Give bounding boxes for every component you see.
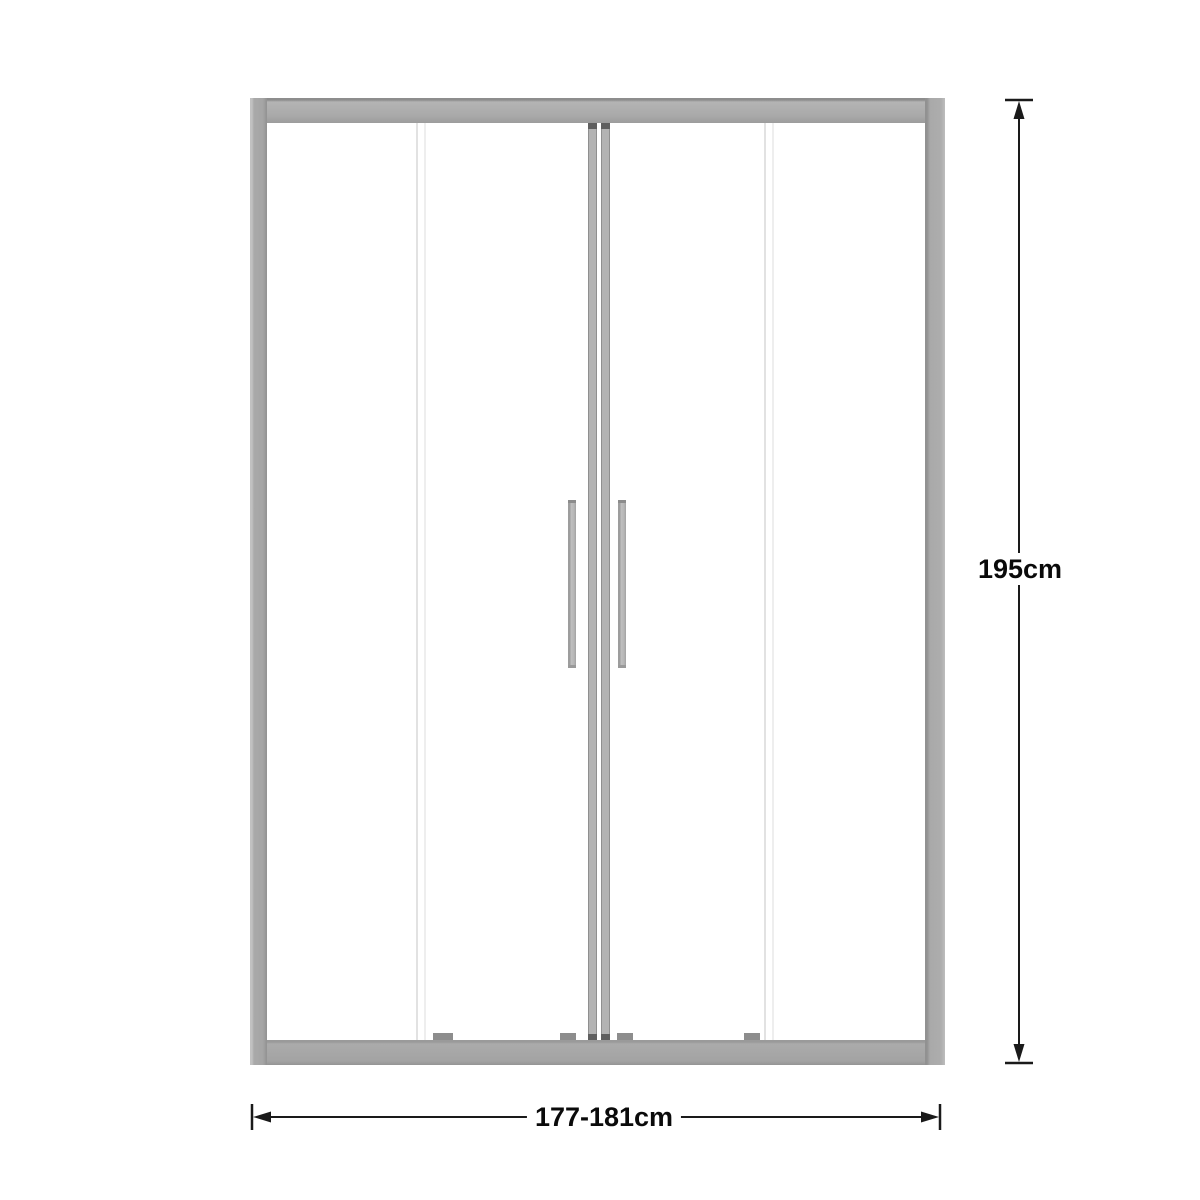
stile-top-roller-left (588, 123, 597, 129)
bottom-guide-block (617, 1033, 633, 1040)
bottom-guide-block (433, 1033, 453, 1040)
fixed-panel-edge-right (764, 123, 766, 1040)
arrow-right-icon (921, 1112, 939, 1123)
shower-door-dimension-diagram: 195cm 177-181cm (0, 0, 1200, 1200)
bottom-guide-block (744, 1033, 760, 1040)
door-frame-bottom-rail (250, 1040, 945, 1065)
door-frame-left-stile (250, 98, 267, 1065)
fixed-panel-edge-left-inner (424, 123, 426, 1040)
width-dimension-label: 177-181cm (527, 1101, 681, 1133)
fixed-panel-edge-right-inner (772, 123, 774, 1040)
door-frame-top-rail (250, 98, 945, 123)
sliding-door-stile-right (601, 123, 610, 1040)
height-dimension-label: 195cm (970, 553, 1070, 585)
door-frame-right-stile (925, 98, 945, 1065)
stile-bottom-roller-left (588, 1034, 597, 1040)
arrow-down-icon (1014, 1044, 1025, 1062)
fixed-panel-edge-left (416, 123, 418, 1040)
arrow-left-icon (253, 1112, 271, 1123)
stile-bottom-roller-right (601, 1034, 610, 1040)
dimension-annotations (0, 0, 1200, 1200)
door-handle-right (618, 500, 626, 668)
stile-top-roller-right (601, 123, 610, 129)
bottom-guide-block (560, 1033, 576, 1040)
door-handle-left (568, 500, 576, 668)
arrow-up-icon (1014, 101, 1025, 119)
sliding-door-stile-left (588, 123, 597, 1040)
